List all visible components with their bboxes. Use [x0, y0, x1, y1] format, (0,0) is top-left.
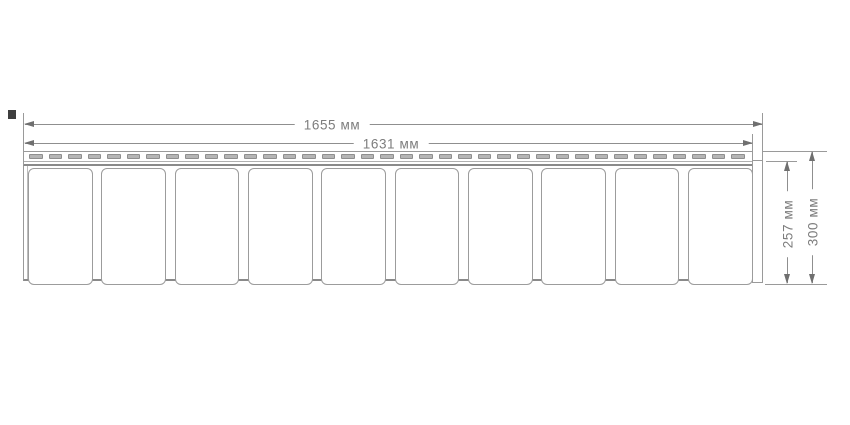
dim-line-total-width: 1655 мм	[25, 124, 762, 125]
nail-slot	[634, 154, 648, 159]
arrow-left-icon	[24, 140, 34, 146]
arrow-left-icon	[24, 121, 34, 127]
nail-slot	[517, 154, 531, 159]
dim-line-body-height: 257 мм	[787, 162, 788, 283]
arrow-right-icon	[743, 140, 753, 146]
nail-slot	[49, 154, 63, 159]
artifact-mark	[8, 110, 16, 119]
arrow-up-icon	[784, 161, 790, 171]
nail-slot	[653, 154, 667, 159]
dim-label-total-width: 1655 мм	[295, 116, 370, 134]
nail-slot	[205, 154, 219, 159]
nail-slot	[283, 154, 297, 159]
strip-groove-line	[24, 161, 752, 162]
nail-slot	[614, 154, 628, 159]
nail-slot	[29, 154, 43, 159]
nail-slot	[146, 154, 160, 159]
nail-slot	[380, 154, 394, 159]
nail-slot	[673, 154, 687, 159]
arrow-down-icon	[809, 274, 815, 284]
nail-slot	[127, 154, 141, 159]
nail-slot	[166, 154, 180, 159]
nail-slot	[478, 154, 492, 159]
nail-slot	[692, 154, 706, 159]
nail-slot	[107, 154, 121, 159]
nail-slot	[439, 154, 453, 159]
extension-line-bottom	[765, 284, 827, 285]
nail-slot	[322, 154, 336, 159]
panel-body	[23, 166, 753, 281]
nail-slot	[88, 154, 102, 159]
nail-slot	[712, 154, 726, 159]
nail-slot	[361, 154, 375, 159]
nail-slot-row	[29, 154, 749, 159]
nail-slot	[68, 154, 82, 159]
nail-slot	[595, 154, 609, 159]
nail-slot	[263, 154, 277, 159]
dim-line-panel-width: 1631 мм	[25, 143, 752, 144]
arrow-down-icon	[784, 274, 790, 284]
right-lock-edge	[752, 160, 763, 283]
panel-left-edge-line	[27, 166, 28, 279]
nail-slot	[224, 154, 238, 159]
dim-label-total-height: 300 мм	[804, 189, 822, 255]
nail-slot	[400, 154, 414, 159]
arrow-right-icon	[753, 121, 763, 127]
nail-slot	[244, 154, 258, 159]
dim-line-total-height: 300 мм	[812, 152, 813, 283]
extension-line-top-total	[763, 151, 827, 152]
nail-hem-strip	[23, 151, 753, 166]
nail-slot	[458, 154, 472, 159]
nail-slot	[731, 154, 745, 159]
arrow-up-icon	[809, 151, 815, 161]
nail-slot	[419, 154, 433, 159]
nail-slot	[556, 154, 570, 159]
nail-slot	[185, 154, 199, 159]
nail-slot	[302, 154, 316, 159]
extension-line-top-body	[766, 161, 797, 162]
dim-label-body-height: 257 мм	[779, 191, 797, 257]
nail-slot	[497, 154, 511, 159]
diagram-canvas: 1655 мм 1631 мм 257 мм 300 мм	[0, 0, 850, 425]
nail-slot	[575, 154, 589, 159]
nail-slot	[536, 154, 550, 159]
nail-slot	[341, 154, 355, 159]
strip-edge-line	[24, 164, 752, 165]
